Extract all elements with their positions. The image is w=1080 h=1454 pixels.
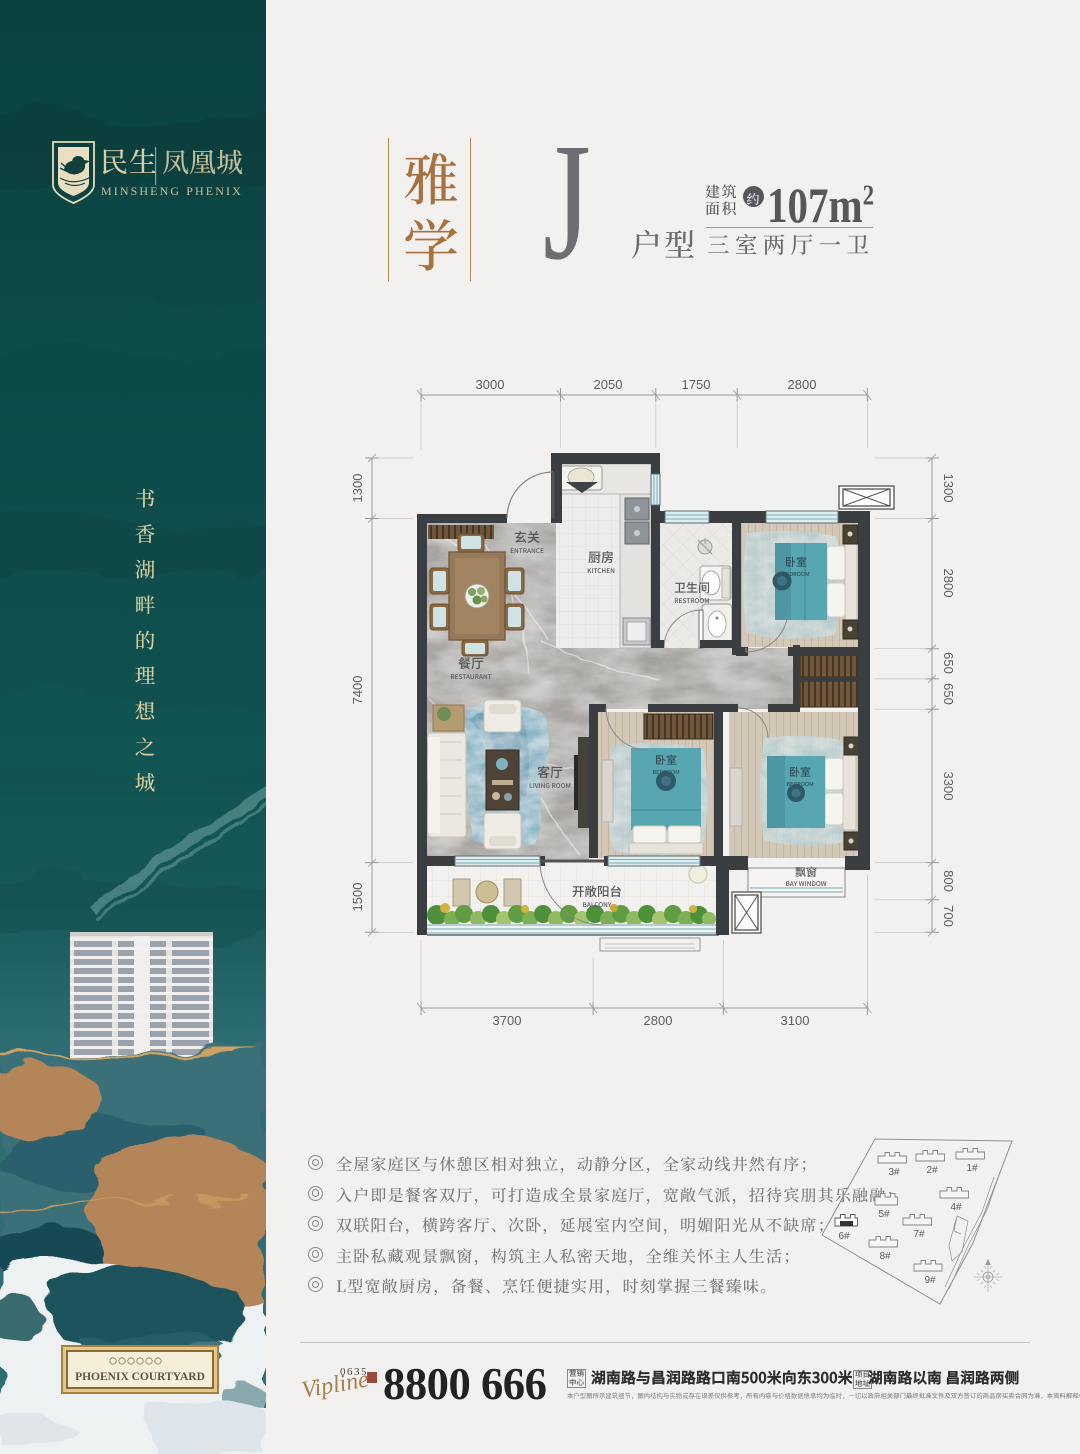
svg-text:1750: 1750 (682, 377, 711, 392)
svg-text:3#: 3# (888, 1167, 900, 1178)
svg-text:3000: 3000 (476, 377, 505, 392)
svg-text:厨房: 厨房 (588, 547, 614, 566)
svg-text:RESTAURANT: RESTAURANT (450, 671, 491, 681)
svg-text:650: 650 (941, 652, 956, 674)
svg-text:2#: 2# (926, 1165, 938, 1176)
svg-text:开敞阳台: 开敞阳台 (572, 881, 622, 900)
svg-text:5#: 5# (878, 1209, 890, 1220)
svg-text:PHOENIX COURTYARD: PHOENIX COURTYARD (75, 1371, 205, 1383)
svg-text:700: 700 (941, 905, 956, 927)
svg-text:BEDROOM: BEDROOM (782, 570, 810, 578)
svg-text:书香湖畔的理想之城: 书香湖畔的理想之城 (130, 487, 160, 807)
svg-text:MINSHENG PHENIX: MINSHENG PHENIX (101, 184, 243, 198)
svg-text:玄关: 玄关 (514, 527, 540, 546)
svg-text:1300: 1300 (941, 474, 956, 503)
svg-text:KITCHEN: KITCHEN (587, 565, 615, 575)
svg-text:1500: 1500 (350, 883, 365, 912)
svg-text:8#: 8# (879, 1251, 891, 1262)
svg-text:BAY WINDOW: BAY WINDOW (785, 878, 826, 888)
svg-text:6#: 6# (838, 1231, 850, 1242)
svg-text:客厅: 客厅 (537, 762, 563, 781)
svg-text:7400: 7400 (350, 676, 365, 705)
svg-text:1#: 1# (966, 1163, 978, 1174)
svg-text:2050: 2050 (594, 377, 623, 392)
svg-text:650: 650 (941, 683, 956, 705)
svg-text:2800: 2800 (644, 1013, 673, 1028)
svg-text:4#: 4# (950, 1202, 962, 1213)
svg-text:BEDROOM: BEDROOM (652, 768, 680, 776)
svg-text:餐厅: 餐厅 (458, 653, 484, 672)
svg-text:2800: 2800 (788, 377, 817, 392)
svg-text:卧室: 卧室 (789, 764, 811, 780)
svg-text:RESTROOM: RESTROOM (674, 595, 709, 605)
svg-text:凤凰城: 凤凰城 (162, 141, 243, 180)
svg-text:3300: 3300 (941, 772, 956, 801)
svg-text:3100: 3100 (781, 1013, 810, 1028)
svg-text:LIVING ROOM: LIVING ROOM (529, 780, 571, 790)
svg-text:7#: 7# (913, 1229, 925, 1240)
svg-text:卧室: 卧室 (785, 554, 807, 570)
svg-text:800: 800 (941, 870, 956, 892)
svg-text:卧室: 卧室 (655, 752, 677, 768)
svg-text:卫生间: 卫生间 (674, 579, 710, 596)
svg-text:3700: 3700 (493, 1013, 522, 1028)
svg-text:9#: 9# (924, 1275, 936, 1286)
svg-text:BEDROOM: BEDROOM (786, 780, 814, 788)
svg-text:民生: 民生 (100, 141, 158, 181)
svg-text:ENTRANCE: ENTRANCE (510, 545, 544, 555)
svg-text:BALCONY: BALCONY (583, 899, 612, 909)
svg-text:2800: 2800 (941, 569, 956, 598)
svg-text:1300: 1300 (350, 474, 365, 503)
